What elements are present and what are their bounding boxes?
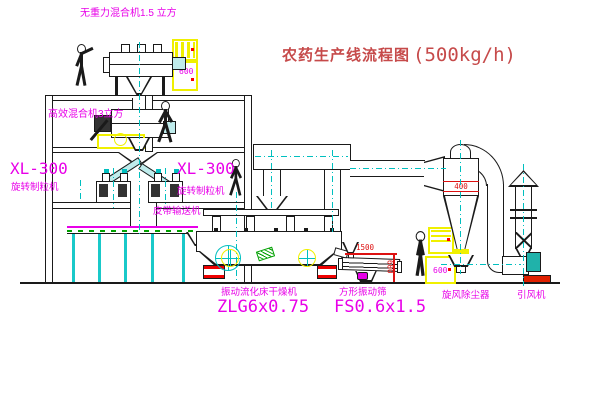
flow-diagram-canvas: 农药生产线流程图 (500kg/h) 600 (0, 0, 600, 403)
riser1-funnel-fill (258, 196, 286, 210)
beam-floor3-left (45, 202, 131, 209)
sieve-end-cap-left (338, 258, 343, 270)
granulator2-block (151, 184, 160, 197)
centerline-duct-right (350, 168, 446, 169)
cabinet-mark: 600 (433, 267, 447, 275)
cyclone-inlet-fill (424, 158, 443, 190)
pedestal-red-base (318, 275, 336, 278)
sieve-width-dim: 600 (386, 260, 394, 274)
cabinet-red-dot (448, 268, 451, 271)
centerline-mixers (139, 42, 140, 234)
fan-base (523, 275, 551, 283)
belt-leg (151, 234, 154, 282)
dryer-clamp (214, 228, 218, 232)
belt-leg (72, 234, 75, 282)
label-granulator-mid-model: XL-300 (177, 161, 235, 177)
mixer2-base-circle (114, 133, 127, 146)
premix-mixer (95, 40, 195, 98)
page-title: 农药生产线流程图 (500kg/h) (282, 44, 516, 65)
centerline-cyclone (460, 140, 461, 274)
cyclone-discharge-stem (456, 267, 466, 273)
worker-figure-4 (406, 231, 434, 282)
label-cyclone: 旋风除尘器 (442, 291, 490, 301)
worker-leg (235, 178, 241, 196)
sieve-length-dim: 1500 (356, 244, 374, 252)
title-capacity: (500kg/h) (413, 46, 516, 65)
centerline-left-label (80, 180, 81, 200)
cyclone-red-band: 400 (443, 181, 479, 192)
mixer1-leg (162, 77, 165, 95)
sieve-end-cap-right (397, 261, 402, 273)
centerline-granulator-1 (113, 168, 114, 208)
pedestal-red-band (318, 266, 336, 269)
dryer-clamp (274, 228, 278, 232)
title-text: 农药生产线流程图 (282, 44, 410, 65)
centerline-riser-2 (332, 150, 333, 232)
dryer-circle-yellow-2 (298, 249, 316, 267)
centerline-dryer (236, 192, 237, 282)
label-dryer-model: ZLG6x0.75 (217, 299, 309, 316)
cabinet-red-dot (447, 238, 450, 241)
mixer1-body (109, 52, 173, 77)
sieve-motor (357, 272, 368, 280)
sieve-dim-line-length (345, 253, 397, 255)
centerline-riser-1 (271, 150, 272, 210)
label-premix-mixer: 无重力混合机1.5 立方 (80, 9, 177, 19)
label-granulator-left-model: XL-300 (10, 161, 68, 177)
worker-leg (419, 254, 424, 276)
granulator-1 (96, 167, 132, 203)
worker-leg (80, 66, 86, 86)
granulator1-block (99, 184, 108, 197)
worker-figure-1 (68, 44, 94, 92)
fan-housing (502, 256, 529, 275)
mixer1-outlet-fitting (172, 57, 186, 70)
label-sieve-model: FS0.6x1.5 (334, 299, 426, 316)
mixer1-leg (115, 77, 118, 95)
dryer-circle-yellow-1 (221, 249, 239, 267)
mixer1-end-cap (103, 57, 110, 73)
downcomer-duct (487, 184, 504, 258)
centerline-fan-inlet (441, 264, 521, 265)
ground-line (20, 282, 560, 284)
belt-leg (98, 234, 101, 282)
centerline-stack (523, 164, 524, 286)
label-granulator-mid-name: 旋转制粒机 (177, 187, 225, 197)
fan-motor (526, 252, 541, 272)
centerline-granulator-2 (165, 168, 166, 208)
dryer-clamp (304, 228, 308, 232)
worker-leg (164, 123, 172, 143)
label-belt-conveyor: 皮带输送机 (153, 207, 201, 217)
belt-conveyor (67, 226, 198, 234)
label-granulator-left-name: 旋转制粒机 (11, 183, 59, 193)
centerline-exhaust-duct (255, 156, 348, 157)
dryer-clamp (244, 228, 248, 232)
dryer-top-rail (203, 209, 339, 216)
pedestal-red-base (204, 275, 224, 278)
label-induced-draft-fan: 引风机 (517, 291, 546, 301)
granulator1-block (118, 184, 127, 197)
cyclone-inlet-transition (424, 156, 445, 192)
label-high-efficiency-mixer: 高效混合机3立方 (48, 110, 124, 120)
dryer-pedestal-right (317, 265, 337, 279)
belt-leg (182, 234, 185, 282)
exhaust-manifold (253, 144, 351, 170)
belt-green-dashes (67, 230, 198, 232)
worker-figure-2 (152, 101, 178, 149)
belt-leg (124, 234, 127, 282)
